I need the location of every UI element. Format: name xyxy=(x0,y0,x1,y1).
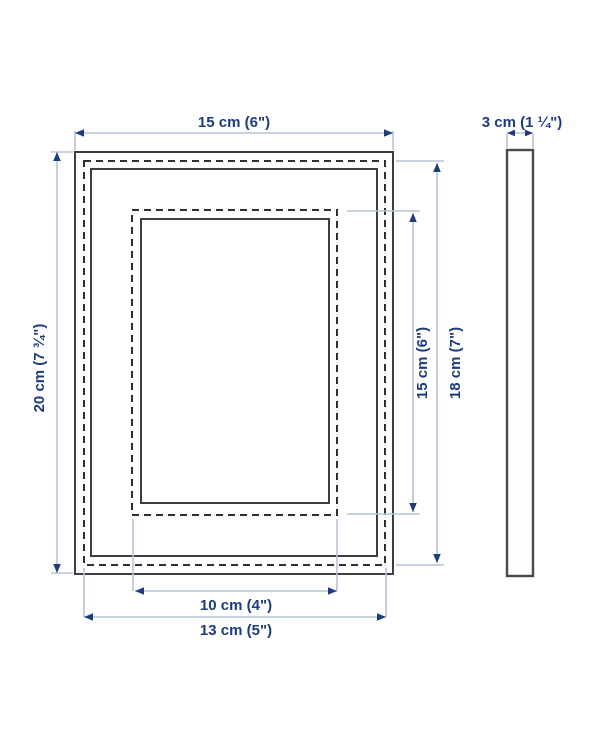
dimension-label-opening-width: 10 cm (4") xyxy=(200,597,272,614)
dimension-label-glass-height: 18 cm (7") xyxy=(447,327,464,399)
arrowhead-right-icon xyxy=(328,587,337,595)
arrowhead-down-icon xyxy=(53,564,61,573)
frame-front-view xyxy=(75,152,393,574)
dimension-overall-height: 20 cm (7 ¾") xyxy=(31,152,73,573)
arrowhead-left-icon xyxy=(75,129,84,137)
picture-opening xyxy=(141,219,329,503)
dimension-diagram-canvas: 15 cm (6") 3 cm (1 ¼") 20 cm (7 ¾") xyxy=(0,0,600,750)
frame-side-view xyxy=(507,150,533,576)
arrowhead-down-icon xyxy=(409,503,417,512)
arrowhead-up-icon xyxy=(433,163,441,172)
arrowhead-left-icon xyxy=(135,587,144,595)
product-dimension-diagram: 15 cm (6") 3 cm (1 ¼") 20 cm (7 ¾") xyxy=(0,0,600,750)
dimension-label-overall-width: 15 cm (6") xyxy=(198,114,270,131)
dimension-label-depth: 3 cm (1 ¼") xyxy=(482,114,562,131)
arrowhead-down-icon xyxy=(433,554,441,563)
frame-side-profile xyxy=(507,150,533,576)
arrowhead-up-icon xyxy=(53,152,61,161)
arrowhead-left-icon xyxy=(84,613,93,621)
dimension-overall-width: 15 cm (6") xyxy=(75,114,393,150)
dimension-label-glass-width: 13 cm (5") xyxy=(200,622,272,639)
dimension-depth: 3 cm (1 ¼") xyxy=(482,114,562,148)
dimension-label-opening-height: 15 cm (6") xyxy=(414,327,431,399)
arrowhead-up-icon xyxy=(409,213,417,222)
arrowhead-right-icon xyxy=(377,613,386,621)
arrowhead-right-icon xyxy=(384,129,393,137)
dimension-label-overall-height: 20 cm (7 ¾") xyxy=(31,324,48,413)
